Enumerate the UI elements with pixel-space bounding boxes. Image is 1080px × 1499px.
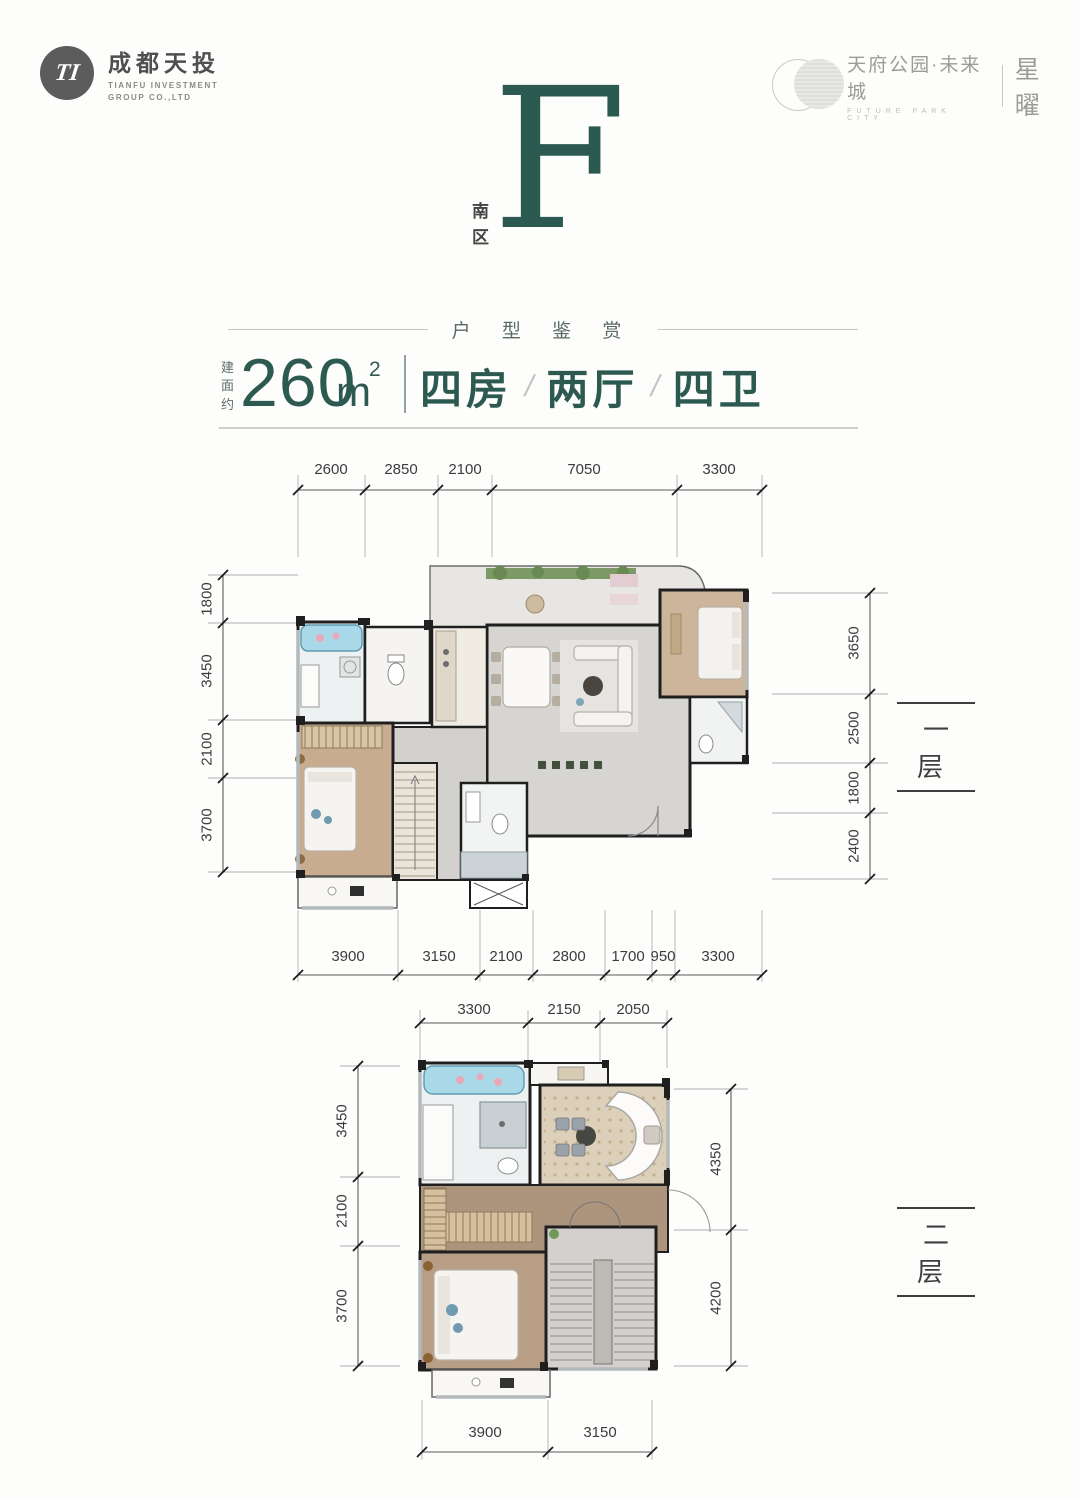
dim-label: 2600 <box>314 461 347 478</box>
dim-label: 3700 <box>199 808 216 841</box>
bench <box>671 614 681 654</box>
dim-label: 2100 <box>489 948 522 965</box>
dim-label: 2150 <box>547 1001 580 1018</box>
logo-circle-filled <box>794 59 844 109</box>
brand-divider <box>1002 65 1003 107</box>
brand-right-mark: 星曜 <box>1015 50 1080 122</box>
floor2-plan-svg <box>340 1000 760 1470</box>
tianfu-logo-icon: TI <box>40 46 94 100</box>
dim-label: 3300 <box>457 1001 490 1018</box>
vanity <box>466 792 480 822</box>
dim-label: 2800 <box>552 948 585 965</box>
brand-right-name: 天府公园·未来城 <box>847 50 992 104</box>
dim-label: 2100 <box>448 461 481 478</box>
balcony-deco <box>350 886 364 896</box>
area-prefix-char: 约 <box>221 396 234 414</box>
bathtub <box>424 1066 524 1094</box>
spec-slash: / <box>648 370 664 404</box>
terrace-table <box>526 595 544 613</box>
zone-label: 南区 <box>466 202 491 254</box>
dim-label: 2100 <box>334 1194 351 1227</box>
exterior-door <box>668 1190 710 1232</box>
poster-canvas: TI 成都天投 TIANFU INVESTMENT GROUP CO.,LTD … <box>0 0 1080 1499</box>
spec-bottom-rule <box>219 427 858 429</box>
dim-label: 950 <box>650 948 675 965</box>
dim-label: 3300 <box>702 461 735 478</box>
dim-label: 2850 <box>384 461 417 478</box>
floor2-label: 二层 <box>897 1207 975 1297</box>
dim-label: 3900 <box>331 948 364 965</box>
dim-label: 1700 <box>611 948 644 965</box>
future-park-logo-icon <box>772 57 839 115</box>
terrace-mat <box>610 574 638 587</box>
section-title: 户 型 鉴 赏 <box>452 316 635 343</box>
unit-letter: F <box>492 62 627 257</box>
area-unit-sup: 2 <box>369 358 381 382</box>
dim-label: 3150 <box>583 1424 616 1441</box>
bathtub <box>301 625 362 651</box>
dim-label: 2500 <box>846 711 863 744</box>
kitchen-counter <box>436 631 456 721</box>
toilet <box>498 1158 518 1174</box>
dim-label: 3650 <box>846 626 863 659</box>
coffee-table <box>583 676 603 696</box>
terrace-mat <box>610 594 638 605</box>
spec-slash: / <box>521 370 537 404</box>
brand-right-sub: FUTURE PARK CITY <box>847 108 992 122</box>
dim-label: 2400 <box>846 829 863 862</box>
dim-label: 3300 <box>701 948 734 965</box>
toilet <box>699 735 713 753</box>
floor1-plan <box>295 566 749 908</box>
dim-label: 2100 <box>199 732 216 765</box>
spec-divider <box>404 355 406 413</box>
dim-label: 3900 <box>468 1424 501 1441</box>
balcony <box>432 1370 550 1397</box>
stair-flight <box>614 1260 654 1364</box>
dim-label: 4200 <box>708 1281 725 1314</box>
bench <box>558 1067 584 1080</box>
baths-count: 四卫 <box>673 356 765 417</box>
dim-label: 4350 <box>708 1142 725 1175</box>
toilet <box>388 663 404 685</box>
rooms-count: 四房 <box>420 356 512 417</box>
plant <box>549 1229 559 1239</box>
area-prefix-char: 面 <box>221 377 234 395</box>
brand-left-sub2: GROUP CO.,LTD <box>108 93 220 102</box>
dim-label: 3450 <box>199 654 216 687</box>
area-unit: m <box>336 368 371 416</box>
stair-divider <box>594 1260 612 1364</box>
desk-chair <box>644 1126 660 1144</box>
toilet <box>492 814 508 834</box>
brand-left: TI 成都天投 TIANFU INVESTMENT GROUP CO.,LTD <box>40 44 220 102</box>
lamp <box>423 1353 433 1363</box>
area-prefix: 建 面 约 <box>221 359 234 414</box>
dining-table <box>503 647 550 707</box>
dim-label: 7050 <box>567 461 600 478</box>
area-prefix-char: 建 <box>221 359 234 377</box>
lamp <box>423 1261 433 1271</box>
brand-right-text: 天府公园·未来城 FUTURE PARK CITY <box>847 50 992 122</box>
brand-left-text: 成都天投 TIANFU INVESTMENT GROUP CO.,LTD <box>108 44 220 102</box>
dim-label: 2050 <box>616 1001 649 1018</box>
dim-label: 3700 <box>334 1289 351 1322</box>
floor2-plan <box>418 1060 710 1397</box>
logo-monogram: TI <box>53 60 81 87</box>
balcony-deco <box>500 1378 514 1388</box>
room-spec: 四房 / 两厅 / 四卫 <box>420 356 765 417</box>
stair-flight <box>550 1260 592 1364</box>
dim-label: 3150 <box>422 948 455 965</box>
shower <box>461 852 527 878</box>
brand-left-name: 成都天投 <box>108 44 220 78</box>
vanity <box>423 1105 453 1180</box>
title-rule-right <box>658 329 858 331</box>
floor1-label: 一层 <box>897 702 975 792</box>
section-title-row: 户 型 鉴 赏 <box>228 316 858 343</box>
washer <box>340 657 360 677</box>
balcony <box>298 877 397 908</box>
vanity <box>301 665 319 707</box>
dim-label: 1800 <box>199 582 216 615</box>
brand-left-sub1: TIANFU INVESTMENT <box>108 81 220 90</box>
dim-label: 3450 <box>334 1104 351 1137</box>
floor1-plan-svg <box>200 455 890 995</box>
brand-right: 天府公园·未来城 FUTURE PARK CITY 星曜 <box>772 50 1080 122</box>
dim-label: 1800 <box>846 771 863 804</box>
halls-count: 两厅 <box>546 356 638 417</box>
title-rule-left <box>228 329 428 331</box>
